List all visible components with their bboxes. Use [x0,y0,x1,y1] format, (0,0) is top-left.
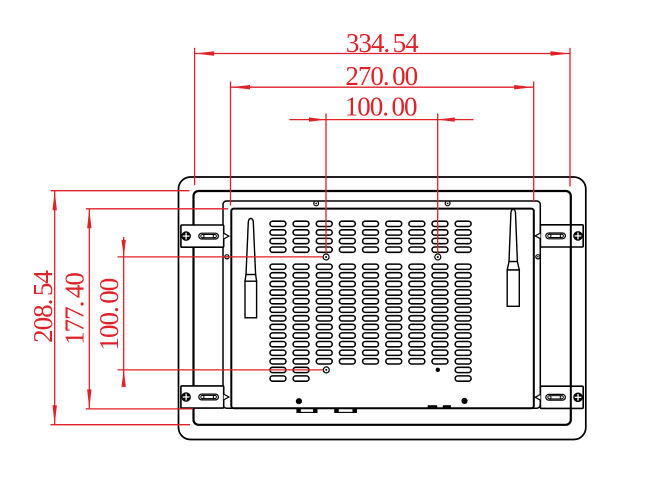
svg-text:100.00: 100.00 [345,91,417,121]
svg-text:208.54: 208.54 [28,270,58,343]
svg-text:100.00: 100.00 [94,278,124,350]
svg-text:270.00: 270.00 [345,61,417,91]
svg-text:334.54: 334.54 [346,28,419,58]
svg-text:177.40: 177.40 [59,273,89,345]
